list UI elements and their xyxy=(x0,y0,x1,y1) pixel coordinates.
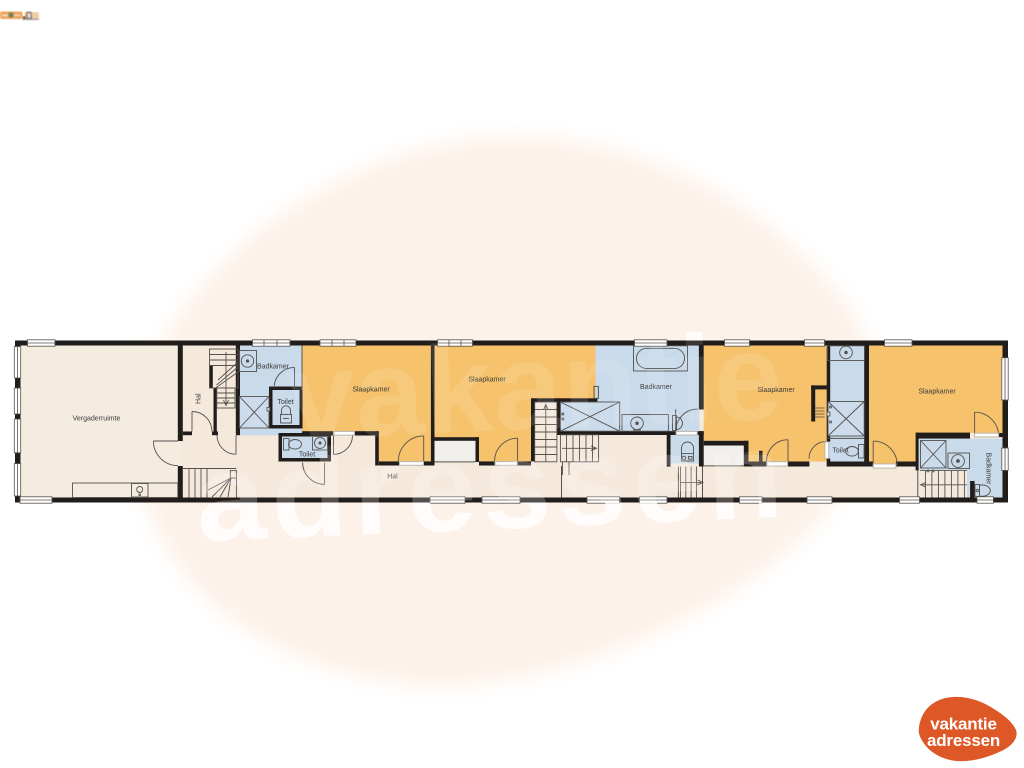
svg-text:Toilet: Toilet xyxy=(832,448,848,455)
svg-text:Badkamer: Badkamer xyxy=(985,453,992,486)
svg-text:adressen: adressen xyxy=(927,731,1000,750)
svg-text:Slaapkamer: Slaapkamer xyxy=(918,389,956,396)
svg-text:Hal: Hal xyxy=(196,393,203,404)
svg-text:Vergaderruimte: Vergaderruimte xyxy=(73,416,121,423)
